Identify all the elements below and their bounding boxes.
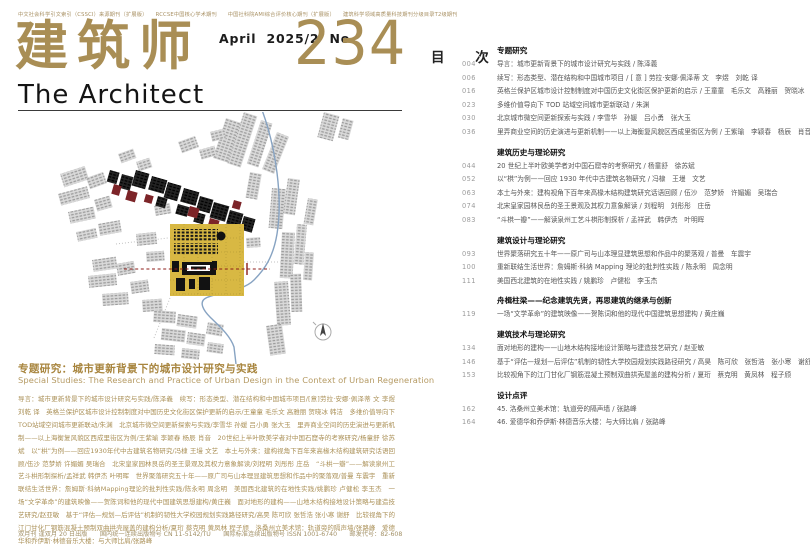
toc-entry: 04420 世纪上半叶欧美学者对中国石窟寺的考察研究 / 杨童舒 徐苏斌 [462, 160, 802, 174]
toc-entry: 074北宋皇家园林艮岳的圣王景观及其权力意象解读 / 刘程明 刘彤彤 庄岳 [462, 200, 802, 214]
publication-info: 双月刊 逢双月 20 日出版 国内统一连续出版物号 CN 11-5142/TU … [18, 529, 398, 538]
toc-entry-page: 052 [462, 173, 497, 187]
toc-entry: 023多维价值导向下 TOD 站域空间城市更新联动 / 朱渊 [462, 99, 802, 113]
map-svg [58, 112, 410, 364]
toc-entry: 052以“栱”为例——回应 1930 年代中古建筑名物研究 / 冯棣 王墁 文艺 [462, 173, 802, 187]
toc-section-heading: 建筑技术与理论研究 [462, 328, 802, 342]
toc-entry-title: 多维价值导向下 TOD 站域空间城市更新联动 / 朱渊 [497, 99, 649, 113]
toc-entry-title: “斗栱一瓣”——解读泉州工艺斗栱形制探析 / 孟祥武 韩伊杰 叶明晖 [497, 214, 704, 228]
toc-entry-title: 世界聚落研究五十年——原广司与山本理显建筑思想和作品中的聚落观 / 普曼 车震宇 [497, 248, 751, 262]
toc-entry: 111美国西北建筑的在地性实践 / 姚鹏珍 卢健松 李玉杰 [462, 275, 802, 289]
toc-section-heading: 舟楫柱梁——纪念建筑先贤，再思建筑的继承与创新 [462, 294, 802, 308]
toc-entry-title: 45. 洛桑州立美术馆：轨道旁的隔声墙 / 张路峰 [497, 403, 637, 417]
toc-entry-page: 044 [462, 160, 497, 174]
toc-entry: 119一场“文学革命”的建筑映像——贺陈词和他的现代中国建筑思想建构 / 黄庄巍 [462, 308, 802, 322]
toc-section-heading: 专题研究 [462, 44, 802, 58]
figure-ground-map [58, 112, 410, 364]
toc-entry-page: 111 [462, 275, 497, 289]
journal-title-cn: 建筑师 [15, 20, 201, 73]
toc-entry-page: 134 [462, 342, 497, 356]
toc-entry: 100重新联结生活世界：詹姆斯·科纳 Mapping 理论的批判性实践 / 陈永… [462, 261, 802, 275]
toc-entry-page: 016 [462, 85, 497, 99]
toc-entry-title: 北京城市微空间更新探索与实践 / 李雪华 孙媛 吕小勇 张大玉 [497, 112, 691, 126]
toc-entry-title: 20 世纪上半叶欧美学者对中国石窟寺的考察研究 / 杨童舒 徐苏斌 [497, 160, 695, 174]
toc-entry-title: 比较视角下的江门甘化厂钢筋混凝土预制双曲拱壳屋盖的建构分析 / 夏珩 蔡克明 黄… [497, 369, 791, 383]
toc-entry-page: 146 [462, 356, 497, 370]
toc-entry: 093世界聚落研究五十年——原广司与山本理显建筑思想和作品中的聚落观 / 普曼 … [462, 248, 802, 262]
toc-entry-page: 164 [462, 416, 497, 430]
magazine-spread: 中文社会科学引文索引（CSSCI）来源期刊（扩展版） RCCSE中国核心学术期刊… [0, 0, 810, 551]
toc-entry-page: 063 [462, 187, 497, 201]
toc-entry-title: 续写：形态类型、潜在结构和中国城市项目 / [ 意 ] 劳拉·安娜·佩泽蒂 文 … [497, 72, 758, 86]
toc-entry-page: 100 [462, 261, 497, 275]
toc-entry: 063本土与外来：建构视角下百年来高椽木结构建筑研究话语回顾 / 伍沙 范梦娇 … [462, 187, 802, 201]
toc-entry: 036里弄商业空间的历史演进与更新机制——以上海衡复风貌区西成里街区为例 / 王… [462, 126, 802, 140]
toc-entry-title: 重新联结生活世界：詹姆斯·科纳 Mapping 理论的批判性实践 / 陈永明 周… [497, 261, 733, 275]
toc-list: 专题研究004导言：城市更新背景下的城市设计研究与实践 / 陈泽義006续写：形… [462, 44, 802, 430]
feature-summary: 导言：城市更新背景下的城市设计研究与实践/陈泽義 续写：形态类型、潜在结构和中国… [18, 393, 395, 548]
toc-section-heading: 建筑设计与理论研究 [462, 234, 802, 248]
toc-entry: 004导言：城市更新背景下的城市设计研究与实践 / 陈泽義 [462, 58, 802, 72]
toc-entry: 083“斗栱一瓣”——解读泉州工艺斗栱形制探析 / 孟祥武 韩伊杰 叶明晖 [462, 214, 802, 228]
toc-entry-page: 083 [462, 214, 497, 228]
toc-entry-title: 里弄商业空间的历史演进与更新机制——以上海衡复风貌区西成里街区为例 / 王紫瑜 … [497, 126, 810, 140]
toc-section-heading: 设计点评 [462, 389, 802, 403]
toc-entry-title: 以“栱”为例——回应 1930 年代中古建筑名物研究 / 冯棣 王墁 文艺 [497, 173, 706, 187]
toc-entry-page: 004 [462, 58, 497, 72]
toc-entry: 030北京城市微空间更新探索与实践 / 李雪华 孙媛 吕小勇 张大玉 [462, 112, 802, 126]
toc-entry-title: 导言：城市更新背景下的城市设计研究与实践 / 陈泽義 [497, 58, 657, 72]
toc-entry-title: 英格兰保护区城市设计控制制度对中国历史文化街区保护更新的启示 / 王童童 毛乐文… [497, 85, 810, 99]
toc-entry: 006续写：形态类型、潜在结构和中国城市项目 / [ 意 ] 劳拉·安娜·佩泽蒂… [462, 72, 802, 86]
toc-entry-title: 46. 爱德华和乔伊斯·林德音乐大楼：与大师比肩 / 张路峰 [497, 416, 666, 430]
compass-icon [313, 322, 331, 340]
toc-entry-page: 162 [462, 403, 497, 417]
toc-entry-title: 北宋皇家园林艮岳的圣王景观及其权力意象解读 / 刘程明 刘彤彤 庄岳 [497, 200, 711, 214]
toc-entry: 146基于“评估—规划—后评估”机制的韧性大学校园规划实践路径研究 / 高昊 陈… [462, 356, 802, 370]
toc-entry: 16446. 爱德华和乔伊斯·林德音乐大楼：与大师比肩 / 张路峰 [462, 416, 802, 430]
toc-entry-page: 153 [462, 369, 497, 383]
toc-entry-title: 美国西北建筑的在地性实践 / 姚鹏珍 卢健松 李玉杰 [497, 275, 657, 289]
feature-subtitle-en: Special Studies: The Research and Practi… [18, 375, 434, 385]
toc-entry-title: 本土与外来：建构视角下百年来高椽木结构建筑研究话语回顾 / 伍沙 范梦娇 许媚媚… [497, 187, 778, 201]
toc-entry: 134面对地形的建构——山地木结构接地设计策略与建造技艺研究 / 赵亚敏 [462, 342, 802, 356]
toc-entry: 16245. 洛桑州立美术馆：轨道旁的隔声墙 / 张路峰 [462, 403, 802, 417]
toc-entry-page: 119 [462, 308, 497, 322]
toc-entry-page: 023 [462, 99, 497, 113]
toc-entry-page: 030 [462, 112, 497, 126]
masthead-rule [18, 110, 402, 111]
toc-entry-title: 一场“文学革命”的建筑映像——贺陈词和他的现代中国建筑思想建构 / 黄庄巍 [497, 308, 724, 322]
feature-title: 专题研究：城市更新背景下的城市设计研究与实践 [18, 361, 258, 376]
toc-entry-page: 036 [462, 126, 497, 140]
toc-entry-title: 基于“评估—规划—后评估”机制的韧性大学校园规划实践路径研究 / 高昊 陈可欣 … [497, 356, 810, 370]
toc-entry-page: 093 [462, 248, 497, 262]
journal-title-en: The Architect [18, 82, 204, 108]
issue-number: 234 [294, 13, 406, 74]
toc-entry-page: 074 [462, 200, 497, 214]
toc-entry-title: 面对地形的建构——山地木结构接地设计策略与建造技艺研究 / 赵亚敏 [497, 342, 704, 356]
toc-entry-page: 006 [462, 72, 497, 86]
toc-entry: 016英格兰保护区城市设计控制制度对中国历史文化街区保护更新的启示 / 王童童 … [462, 85, 802, 99]
toc-section-heading: 建筑历史与理论研究 [462, 146, 802, 160]
toc-entry: 153比较视角下的江门甘化厂钢筋混凝土预制双曲拱壳屋盖的建构分析 / 夏珩 蔡克… [462, 369, 802, 383]
